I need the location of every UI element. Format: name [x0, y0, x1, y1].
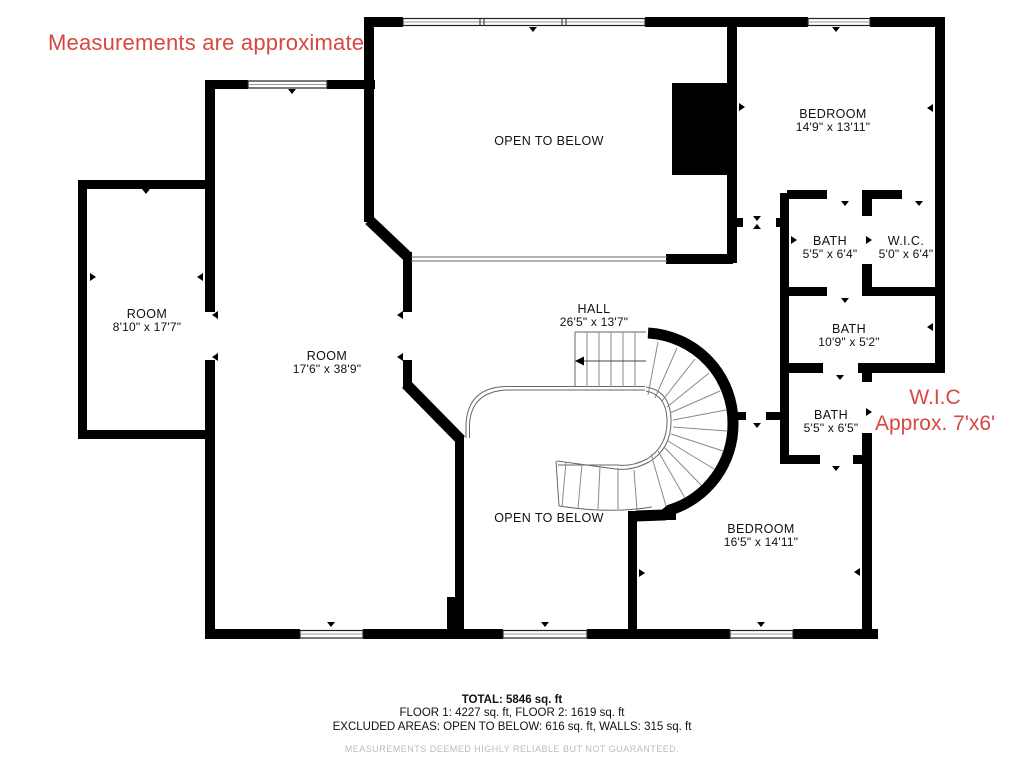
room-label-open-to-below-1: OPEN TO BELOW	[494, 135, 604, 148]
room-label-hall: HALL 26'5" x 13'7"	[560, 303, 628, 329]
floor-areas-text: FLOOR 1: 4227 sq. ft, FLOOR 2: 1619 sq. …	[0, 707, 1024, 721]
room-label-bath-3: BATH 5'5" x 6'5"	[804, 409, 859, 435]
footer-summary: TOTAL: 5846 sq. ft FLOOR 1: 4227 sq. ft,…	[0, 693, 1024, 755]
floor-plan-drawing	[0, 0, 1024, 768]
excluded-areas-text: EXCLUDED AREAS: OPEN TO BELOW: 616 sq. f…	[0, 721, 1024, 735]
measurements-note: Measurements are approximate	[48, 30, 364, 56]
diagonal-walls	[369, 220, 461, 440]
room-label-bath-1: BATH 5'5" x 6'4"	[803, 235, 858, 261]
stair-outer-wall	[636, 333, 733, 516]
floor-plan-page: Measurements are approximate W.I.C Appro…	[0, 0, 1024, 768]
room-label-bedroom-1: BEDROOM 14'9" x 13'11"	[796, 108, 870, 134]
wic-annotation: W.I.C Approx. 7'x6'	[875, 385, 995, 437]
room-label-room-1: ROOM 8'10" x 17'7"	[113, 308, 181, 334]
room-label-open-to-below-2: OPEN TO BELOW	[494, 512, 604, 525]
total-area-text: TOTAL: 5846 sq. ft	[0, 693, 1024, 707]
room-label-wic-1: W.I.C. 5'0" x 6'4"	[879, 235, 934, 261]
railings	[411, 257, 667, 438]
chimney-mass	[672, 83, 730, 175]
room-label-bath-2: BATH 10'9" x 5'2"	[818, 323, 880, 349]
wic-annotation-line1: W.I.C	[875, 385, 995, 411]
room-label-bedroom-2: BEDROOM 16'5" x 14'11"	[724, 523, 798, 549]
disclaimer-text: MEASUREMENTS DEEMED HIGHLY RELIABLE BUT …	[0, 743, 1024, 755]
room-label-room-2: ROOM 17'6" x 38'9"	[293, 350, 361, 376]
wic-annotation-line2: Approx. 7'x6'	[875, 411, 995, 437]
